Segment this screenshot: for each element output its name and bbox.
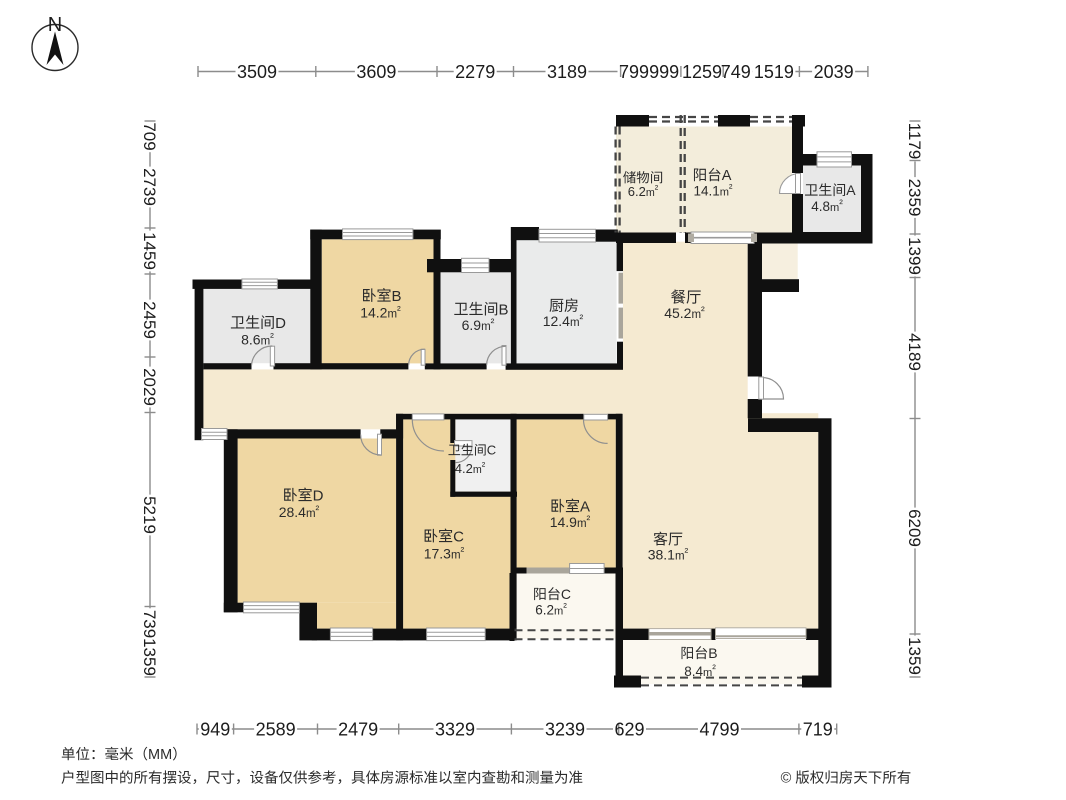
svg-text:m: m — [720, 186, 729, 198]
svg-text:2279: 2279 — [455, 62, 495, 82]
svg-text:3239: 3239 — [545, 719, 585, 739]
svg-text:749: 749 — [721, 62, 751, 82]
svg-text:999: 999 — [649, 62, 679, 82]
svg-text:1459: 1459 — [140, 232, 159, 270]
svg-text:2739: 2739 — [140, 168, 159, 206]
svg-text:1519: 1519 — [754, 62, 794, 82]
svg-text:2589: 2589 — [256, 719, 296, 739]
svg-text:²: ² — [587, 514, 591, 526]
svg-text:A: A — [846, 182, 856, 198]
svg-text:B: B — [392, 288, 402, 305]
svg-text:2359: 2359 — [905, 179, 924, 217]
svg-text:D: D — [313, 487, 324, 504]
svg-text:²: ² — [580, 313, 584, 325]
svg-text:709: 709 — [140, 122, 159, 150]
svg-text:28.4: 28.4 — [279, 504, 306, 520]
svg-text:m: m — [570, 317, 580, 329]
svg-text:4.8: 4.8 — [811, 199, 830, 214]
svg-text:38.1: 38.1 — [648, 547, 675, 563]
svg-text:m: m — [388, 309, 398, 321]
svg-text:m: m — [473, 464, 482, 476]
svg-text:17.3: 17.3 — [424, 546, 451, 562]
svg-text:²: ² — [491, 317, 495, 329]
svg-text:m: m — [577, 518, 587, 530]
svg-text:4189: 4189 — [905, 333, 924, 371]
svg-text:1259: 1259 — [682, 62, 722, 82]
svg-text:739: 739 — [140, 610, 159, 638]
svg-text:²: ² — [461, 546, 465, 558]
svg-text:12.4: 12.4 — [543, 313, 570, 329]
svg-text:©: © — [781, 771, 792, 787]
svg-text:45.2: 45.2 — [664, 305, 691, 321]
svg-text:²: ² — [270, 332, 274, 344]
svg-text:6.2: 6.2 — [628, 184, 646, 199]
svg-text:3609: 3609 — [356, 62, 396, 82]
svg-text:²: ² — [712, 663, 716, 675]
svg-text:8.4: 8.4 — [684, 664, 703, 679]
svg-text:629: 629 — [614, 719, 644, 739]
svg-text:A: A — [580, 498, 590, 515]
svg-text:14.1: 14.1 — [694, 183, 720, 198]
svg-text:²: ² — [655, 185, 659, 196]
svg-text:m: m — [675, 551, 685, 563]
svg-text:8.6: 8.6 — [241, 332, 261, 348]
svg-text:3509: 3509 — [237, 62, 277, 82]
svg-text:14.9: 14.9 — [550, 514, 577, 530]
svg-text:B: B — [708, 645, 717, 661]
svg-text:m: m — [703, 667, 712, 679]
svg-text:C: C — [453, 528, 464, 545]
svg-text:3189: 3189 — [547, 62, 587, 82]
svg-text:²: ² — [397, 305, 401, 317]
svg-text:1359: 1359 — [905, 637, 924, 675]
svg-text:m: m — [261, 336, 271, 348]
svg-text:2479: 2479 — [338, 719, 378, 739]
svg-text:6.2: 6.2 — [535, 602, 554, 617]
svg-text:D: D — [275, 315, 286, 332]
svg-text:1399: 1399 — [905, 237, 924, 275]
svg-text:²: ² — [316, 504, 320, 516]
svg-text:C: C — [487, 443, 496, 458]
svg-text:719: 719 — [803, 719, 833, 739]
svg-text:799: 799 — [619, 62, 649, 82]
svg-text:4799: 4799 — [699, 719, 739, 739]
svg-text:m: m — [692, 309, 702, 321]
svg-text:3329: 3329 — [435, 719, 475, 739]
svg-text:²: ² — [482, 462, 486, 473]
svg-text:1359: 1359 — [140, 638, 159, 676]
svg-text:m: m — [830, 202, 839, 214]
svg-text:m: m — [306, 508, 316, 520]
svg-text:14.2: 14.2 — [360, 305, 387, 321]
svg-text:4.2: 4.2 — [455, 461, 473, 476]
svg-text:2029: 2029 — [140, 368, 159, 406]
svg-text:MM: MM — [148, 747, 172, 763]
svg-text:5219: 5219 — [140, 496, 159, 534]
svg-text:m: m — [646, 187, 655, 199]
svg-text:m: m — [481, 321, 491, 333]
svg-text:6209: 6209 — [905, 509, 924, 547]
svg-text:²: ² — [839, 198, 843, 210]
svg-text:²: ² — [701, 305, 705, 317]
svg-text:m: m — [451, 550, 461, 562]
svg-text:²: ² — [563, 602, 567, 614]
svg-text:2039: 2039 — [814, 62, 854, 82]
svg-text:949: 949 — [200, 719, 230, 739]
svg-text:6.9: 6.9 — [462, 317, 482, 333]
svg-text:1179: 1179 — [905, 123, 924, 160]
svg-text:²: ² — [729, 183, 733, 195]
svg-text:m: m — [554, 605, 563, 617]
svg-text:²: ² — [685, 547, 689, 559]
svg-text:2459: 2459 — [140, 301, 159, 339]
svg-text:B: B — [499, 301, 509, 318]
svg-text:C: C — [561, 586, 571, 602]
